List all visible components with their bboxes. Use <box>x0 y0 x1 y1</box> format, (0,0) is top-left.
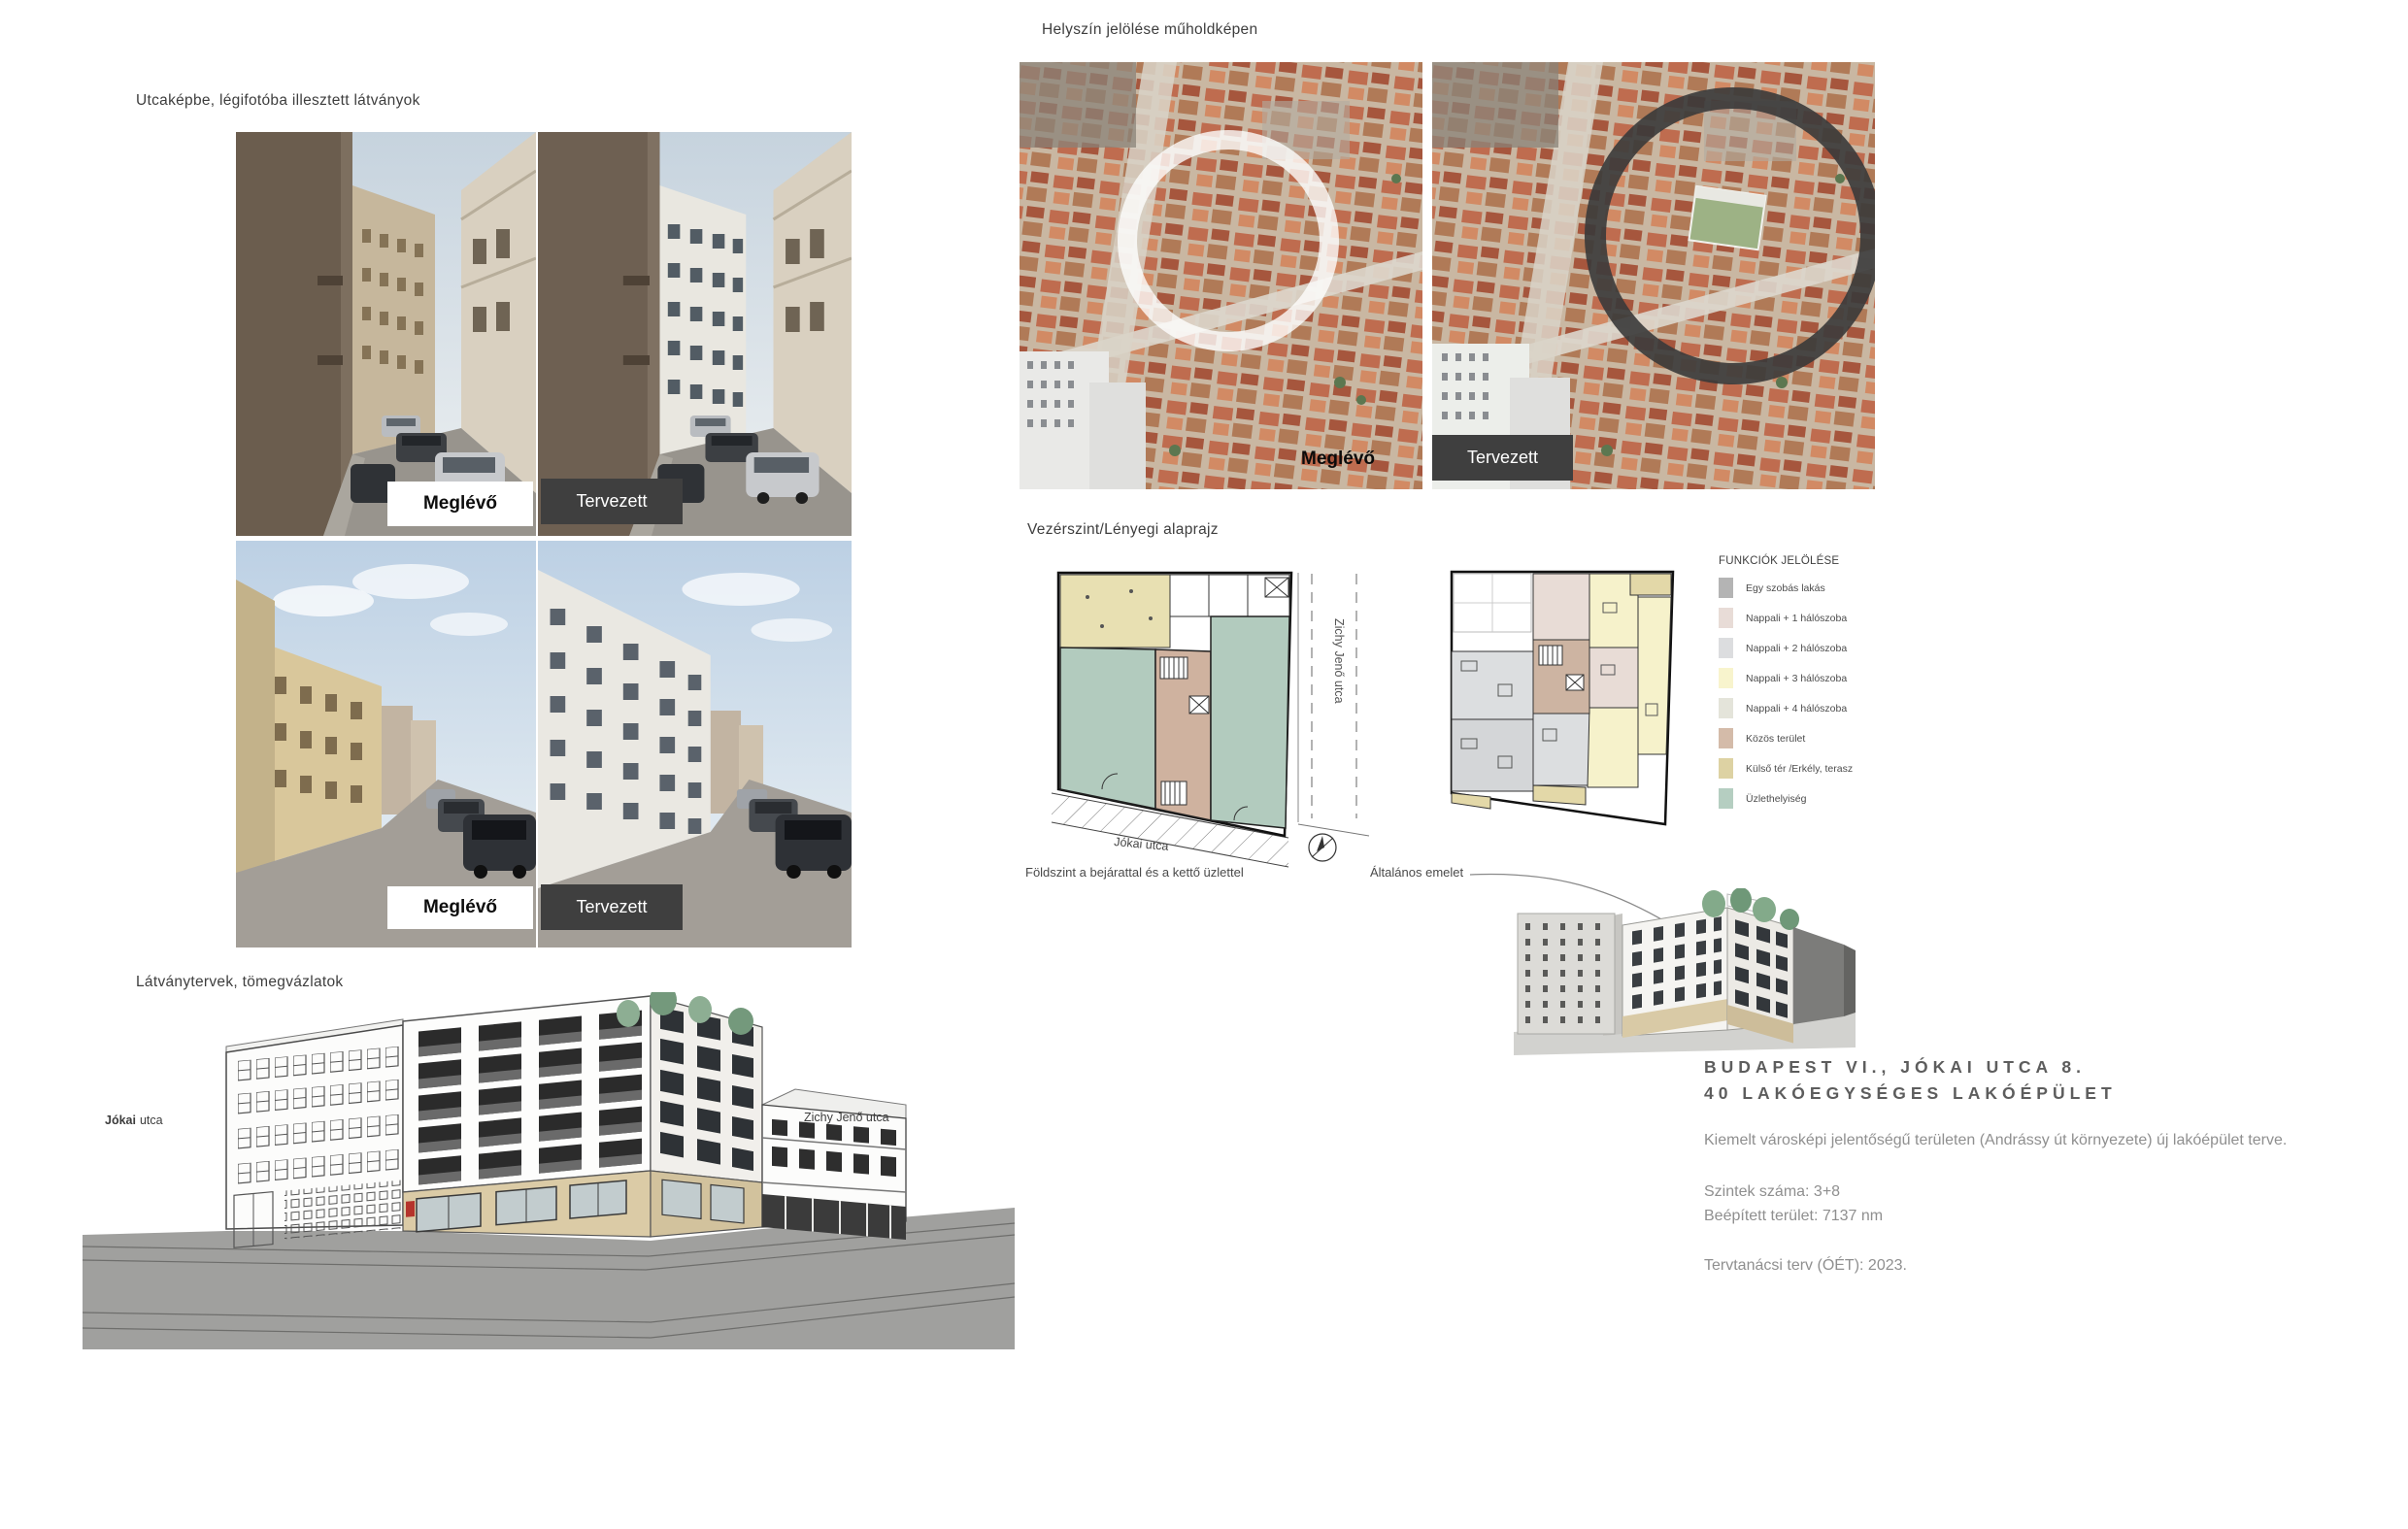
satellite-proposed-tag: Tervezett <box>1432 435 1573 481</box>
legend-label: Közös terület <box>1746 733 1805 745</box>
legend-swatch <box>1719 728 1733 748</box>
typical-floor-caption: Általános emelet <box>1370 865 1463 880</box>
satellite-proposed-graphic <box>1432 62 1875 489</box>
legend-item: Közös terület <box>1719 723 1913 753</box>
legend-items: Egy szobás lakásNappali + 1 hálószobaNap… <box>1719 573 1913 814</box>
street-photo-proposed-1-graphic <box>538 132 852 536</box>
project-approval: Tervtanácsi terv (ÓÉT): 2023. <box>1704 1253 2345 1278</box>
sketch-zichy-street-label: Zichy Jenő utca <box>804 1111 889 1124</box>
legend-item: Nappali + 3 hálószoba <box>1719 663 1913 693</box>
satellite-heading: Helyszín jelölése műholdképen <box>1042 21 1257 39</box>
project-description: Kiemelt városképi jelentőségű területen … <box>1704 1128 2311 1152</box>
satellite-existing-graphic <box>1020 62 1422 489</box>
legend-item: Külső tér /Erkély, terasz <box>1719 753 1913 783</box>
legend-label: Külső tér /Erkély, terasz <box>1746 763 1853 775</box>
legend-item: Nappali + 4 hálószoba <box>1719 693 1913 723</box>
legend-swatch <box>1719 758 1733 779</box>
satellite-proposed-tag-text: Tervezett <box>1467 448 1538 468</box>
existing-tag-row1: Meglévő <box>387 482 533 526</box>
legend-label: Nappali + 2 hálószoba <box>1746 643 1847 654</box>
legend-label: Nappali + 3 hálószoba <box>1746 673 1847 684</box>
street-views-heading: Utcaképbe, légifotóba illesztett látvány… <box>136 92 420 110</box>
presentation-board: Utcaképbe, légifotóba illesztett látvány… <box>0 0 2408 1529</box>
massing-heading: Látványtervek, tömegvázlatok <box>136 974 343 991</box>
legend-item: Egy szobás lakás <box>1719 573 1913 603</box>
project-built-area: Beépített terület: 7137 nm <box>1704 1204 2345 1228</box>
north-arrow-icon <box>1309 834 1336 861</box>
sketch-jokai-street-label: Jókaiutca <box>105 1114 163 1127</box>
legend-swatch <box>1719 698 1733 718</box>
ground-floor-caption: Földszint a bejárattal és a kettő üzlett… <box>1025 865 1244 880</box>
legend-swatch <box>1719 578 1733 598</box>
legend-swatch <box>1719 668 1733 688</box>
legend-swatch <box>1719 788 1733 809</box>
legend-swatch <box>1719 608 1733 628</box>
street-photo-proposed-1 <box>538 132 852 536</box>
massing-sketch-graphic <box>83 992 1015 1349</box>
plans-heading: Vezérszint/Lényegi alaprajz <box>1027 521 1219 539</box>
proposed-tag-row1-text: Tervezett <box>576 491 647 512</box>
proposed-tag-row1: Tervezett <box>541 479 683 524</box>
sketch-jokai-street-label-bold: Jókai <box>105 1114 136 1127</box>
typical-floor-plan <box>1440 558 1697 840</box>
satellite-existing-tag: Meglévő <box>1301 449 1375 470</box>
legend-swatch <box>1719 638 1733 658</box>
legend-item: Nappali + 2 hálószoba <box>1719 633 1913 663</box>
project-title-block: BUDAPEST VI., JÓKAI UTCA 8. 40 LAKÓEGYSÉ… <box>1704 1054 2345 1278</box>
legend-title: FUNKCIÓK JELÖLÉSE <box>1719 555 1913 567</box>
project-title-line2: 40 LAKÓEGYSÉGES LAKÓÉPÜLET <box>1704 1080 2345 1107</box>
storefront-sign <box>406 1201 415 1217</box>
ground-floor-plan-graphic: Zichy Jenő utca Jókai utca <box>1044 558 1379 874</box>
existing-tag-row2-text: Meglévő <box>423 897 497 918</box>
street-photo-existing-1-graphic <box>236 132 536 536</box>
existing-tag-row1-text: Meglévő <box>423 493 497 515</box>
satellite-existing <box>1020 62 1422 489</box>
typical-floor-plan-graphic <box>1440 558 1697 840</box>
legend-label: Egy szobás lakás <box>1746 582 1825 594</box>
street-photo-existing-1 <box>236 132 536 536</box>
ground-floor-plan: Zichy Jenő utca Jókai utca <box>1044 558 1379 874</box>
proposed-tag-row2: Tervezett <box>541 884 683 930</box>
plan-zichy-street-label: Zichy Jenő utca <box>1332 618 1346 704</box>
legend-label: Üzlethelyiség <box>1746 793 1806 805</box>
satellite-proposed <box>1432 62 1875 489</box>
existing-tag-row2: Meglévő <box>387 886 533 929</box>
legend-item: Üzlethelyiség <box>1719 783 1913 814</box>
project-levels: Szintek száma: 3+8 <box>1704 1180 2345 1204</box>
axonometric-view <box>1510 888 1859 1061</box>
project-title-line1: BUDAPEST VI., JÓKAI UTCA 8. <box>1704 1054 2345 1080</box>
axonometric-view-graphic <box>1510 888 1859 1061</box>
legend: FUNKCIÓK JELÖLÉSE Egy szobás lakásNappal… <box>1719 555 1913 814</box>
legend-label: Nappali + 1 hálószoba <box>1746 613 1847 624</box>
proposed-tag-row2-text: Tervezett <box>576 897 647 917</box>
legend-label: Nappali + 4 hálószoba <box>1746 703 1847 715</box>
legend-item: Nappali + 1 hálószoba <box>1719 603 1913 633</box>
sketch-jokai-street-label-rest: utca <box>140 1114 163 1127</box>
massing-sketch <box>83 992 1015 1349</box>
